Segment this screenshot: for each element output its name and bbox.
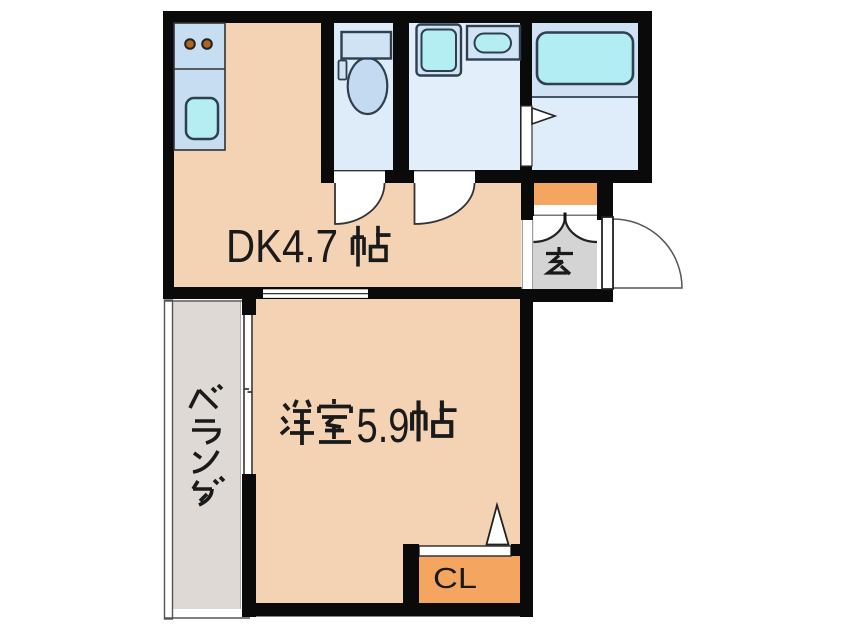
svg-text:DK4.7: DK4.7 [226,220,338,272]
svg-text:5.9: 5.9 [357,399,410,453]
svg-text:CL: CL [433,563,477,595]
